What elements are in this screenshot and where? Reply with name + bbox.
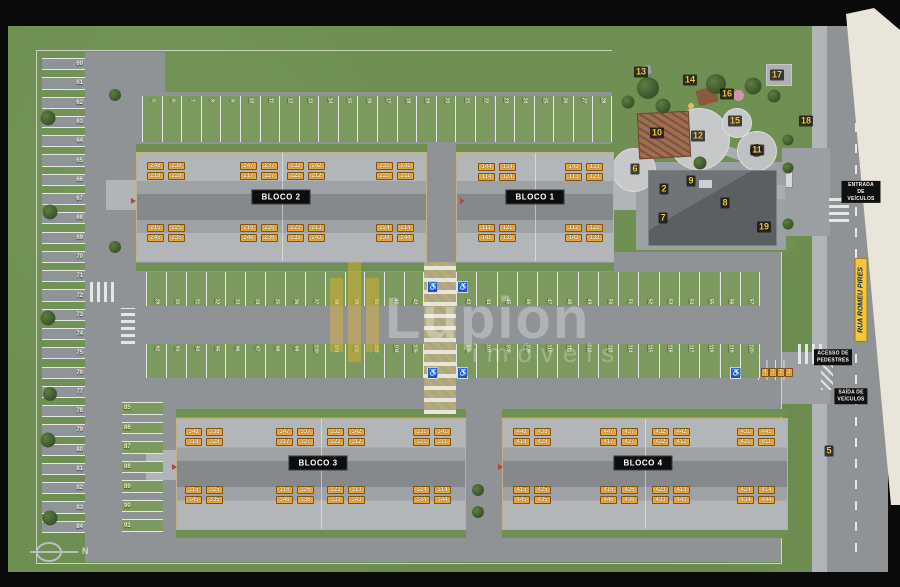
unit-label: 124 <box>499 173 516 181</box>
unit-label: 344 <box>434 496 451 504</box>
parking-stall: 78 <box>42 405 85 417</box>
parking-stall-number: 52 <box>647 299 652 305</box>
parking-stall: 60 <box>42 58 85 70</box>
parking-stall: 26 <box>553 96 573 142</box>
unit-label: 237 <box>261 162 278 170</box>
unit-label: 233 <box>287 234 304 242</box>
unit-label: 134 <box>499 163 516 171</box>
unit-label: 312 <box>348 438 365 446</box>
tree-icon <box>783 219 794 230</box>
parking-stall: 66 <box>42 174 85 186</box>
unit-label: 422 <box>652 438 669 446</box>
unit-label: 317 <box>276 438 293 446</box>
unit-label: 332 <box>327 428 344 436</box>
unit-label: 433 <box>652 496 669 504</box>
watermark-logo-bar <box>348 262 361 362</box>
unit-label: 336 <box>297 496 314 504</box>
pedestrian-access-label: ACESSO DE PEDESTRES <box>814 349 852 365</box>
parking-row-middle-top-west: 2930313233343536373839404142 <box>146 272 424 306</box>
unit-label: 348 <box>185 428 202 436</box>
unit-label: 321 <box>413 438 430 446</box>
unit-label: 437 <box>621 428 638 436</box>
direction-arrow <box>172 464 177 470</box>
parking-stall-number: 54 <box>687 299 692 305</box>
watermark-logo-bar <box>366 278 379 352</box>
parking-stall-number: 62 <box>76 100 83 106</box>
parking-stall-number: 86 <box>124 425 131 431</box>
unit-label: 215 <box>147 224 164 232</box>
parking-stall: 52 <box>638 272 658 306</box>
parking-stall: 10 <box>240 96 260 142</box>
parking-stall-number: 23 <box>502 98 507 104</box>
roof-seam <box>535 153 536 261</box>
unit-label: 417 <box>600 438 617 446</box>
parking-stall: 61 <box>42 77 85 89</box>
block-name-label: BLOCO 3 <box>288 456 347 471</box>
parking-stall: 33 <box>225 272 245 306</box>
direction-arrow <box>498 464 503 470</box>
playground-toy <box>733 90 744 101</box>
parking-stall: 72 <box>42 289 85 301</box>
parking-stall-number: 57 <box>747 299 752 305</box>
unit-label: 442 <box>673 428 690 436</box>
unit-label: 224 <box>376 224 393 232</box>
unit-label: 325 <box>206 486 223 494</box>
parking-stall-number: 74 <box>76 331 83 337</box>
green-strip <box>456 144 614 152</box>
tree-icon <box>43 387 57 401</box>
parking-stall: 14 <box>318 96 338 142</box>
unit-label: 426 <box>621 486 638 494</box>
hatched-island <box>821 362 833 390</box>
parking-stall: 8 <box>201 96 221 142</box>
accessible-parking-icon: ♿ <box>457 367 468 379</box>
parking-stall: 116 <box>659 344 679 378</box>
unit-label: 345 <box>185 496 202 504</box>
parking-stall: 36 <box>285 272 305 306</box>
parking-stall-number: 87 <box>124 444 131 450</box>
legend-marker-8: 8 <box>720 198 729 209</box>
block-name-label: BLOCO 1 <box>505 190 564 205</box>
parking-stall-number: 90 <box>124 503 131 509</box>
parking-stall: 28 <box>592 96 612 142</box>
parking-stall: 34 <box>245 272 265 306</box>
unit-label: 218 <box>147 172 164 180</box>
parking-stall-number: 29 <box>154 299 159 305</box>
legend-marker-17: 17 <box>770 70 784 81</box>
parking-stall-number: 88 <box>124 464 131 470</box>
parking-stall-number: 36 <box>293 299 298 305</box>
unit-label: 416 <box>600 486 617 494</box>
unit-label: 225 <box>168 224 185 232</box>
unit-label: 244 <box>397 234 414 242</box>
parking-stall-number: 93 <box>174 346 179 352</box>
unit-label: 432 <box>652 428 669 436</box>
parking-stall: 82 <box>42 482 85 494</box>
unit-label: 231 <box>376 162 393 170</box>
unit-label: 234 <box>376 234 393 242</box>
clubhouse-building <box>648 170 777 246</box>
visitor-stall-number: 3 <box>769 368 777 377</box>
unit-label: 247 <box>240 162 257 170</box>
unit-label: 322 <box>327 438 344 446</box>
tree-icon <box>656 99 671 114</box>
parking-stall-number: 56 <box>728 299 733 305</box>
unit-label: 323 <box>327 486 344 494</box>
unit-label: 342 <box>348 428 365 436</box>
exit-label: SAÍDA DE VEÍCULOS <box>834 388 867 404</box>
parking-stall-number: 80 <box>76 447 83 453</box>
playground-toy <box>688 103 694 109</box>
parking-stall-number: 64 <box>76 138 83 144</box>
parking-stall: 75 <box>42 347 85 359</box>
accessible-parking-icon: ♿ <box>427 367 438 379</box>
parking-stall: 25 <box>534 96 554 142</box>
green-strip <box>136 263 427 271</box>
parking-stall: 67 <box>42 193 85 205</box>
green-strip <box>456 263 614 271</box>
unit-label: 243 <box>308 234 325 242</box>
unit-label: 415 <box>513 486 530 494</box>
unit-label: 223 <box>287 224 304 232</box>
parking-stall: 64 <box>42 135 85 147</box>
parking-stall-number: 60 <box>76 61 83 67</box>
parking-stall-number: 61 <box>76 80 83 86</box>
parking-stall: 16 <box>357 96 377 142</box>
parking-stall-number: 115 <box>647 344 652 352</box>
unit-label: 242 <box>308 162 325 170</box>
unit-label: 111 <box>478 224 495 232</box>
parking-stall: 19 <box>416 96 436 142</box>
parking-stall-number: 67 <box>76 196 83 202</box>
unit-label: 315 <box>185 486 202 494</box>
unit-label: 314 <box>434 486 451 494</box>
unit-label: 221 <box>376 172 393 180</box>
parking-stall-number: 116 <box>667 344 672 352</box>
unit-label: 143 <box>565 163 582 171</box>
direction-arrow <box>460 198 465 204</box>
green-strip <box>136 144 427 152</box>
parking-stall: 90 <box>122 500 163 513</box>
parking-stall-number: 5 <box>150 99 155 102</box>
unit-label: 448 <box>513 428 530 436</box>
parking-stall: 98 <box>265 344 285 378</box>
parking-stall: 20 <box>436 96 456 142</box>
unit-label: 424 <box>737 486 754 494</box>
unit-label: 435 <box>534 496 551 504</box>
unit-label: 245 <box>147 234 164 242</box>
unit-label: 113 <box>565 173 582 181</box>
legend-marker-12: 12 <box>691 131 705 142</box>
parking-stall-number: 12 <box>287 98 292 104</box>
legend-marker-6: 6 <box>630 164 639 175</box>
parking-stall: 6 <box>162 96 182 142</box>
tree-icon <box>745 78 762 95</box>
parking-stall: 71 <box>42 270 85 282</box>
parking-stall: 31 <box>186 272 206 306</box>
unit-label: 436 <box>621 496 638 504</box>
parking-stall-number: 69 <box>76 235 83 241</box>
green-strip <box>176 530 466 538</box>
parking-stall: 21 <box>455 96 475 142</box>
parking-stall: 24 <box>514 96 534 142</box>
unit-label: 235 <box>168 234 185 242</box>
parking-stall-number: 6 <box>169 99 174 102</box>
green-strip <box>502 409 788 417</box>
unit-label: 427 <box>621 438 638 446</box>
parking-stall: 50 <box>598 272 618 306</box>
unit-label: 213 <box>308 224 325 232</box>
unit-label: 318 <box>185 438 202 446</box>
parking-stall-number: 27 <box>581 98 586 104</box>
tree-icon <box>41 311 56 326</box>
parking-stall-number: 51 <box>626 299 631 305</box>
parking-stall-number: 70 <box>76 254 83 260</box>
parking-stall-number: 33 <box>233 299 238 305</box>
parking-stall-number: 114 <box>626 344 631 352</box>
legend-marker-2: 2 <box>659 184 668 195</box>
zebra-crossing <box>121 308 135 344</box>
parking-stall: 11 <box>260 96 280 142</box>
parking-stall-number: 19 <box>424 98 429 104</box>
parking-stall: 93 <box>166 344 186 378</box>
parking-stall: 18 <box>397 96 417 142</box>
unit-label: 112 <box>565 224 582 232</box>
parking-stall-number: 73 <box>76 312 83 318</box>
unit-label: 246 <box>240 234 257 242</box>
roof-seam <box>645 419 646 529</box>
parking-stall-number: 83 <box>76 505 83 511</box>
parking-stall: 100 <box>305 344 325 378</box>
unit-label: 447 <box>600 428 617 436</box>
unit-label: 248 <box>147 162 164 170</box>
parking-stall: 17 <box>377 96 397 142</box>
parking-stall-number: 26 <box>561 98 566 104</box>
parking-stall-number: 66 <box>76 177 83 183</box>
unit-label: 423 <box>652 486 669 494</box>
unit-label: 144 <box>478 163 495 171</box>
unit-label: 443 <box>673 496 690 504</box>
parking-stall: 91 <box>122 519 163 532</box>
unit-label: 446 <box>600 496 617 504</box>
unit-label: 418 <box>513 438 530 446</box>
parking-stall-number: 77 <box>76 389 83 395</box>
parking-stall-number: 21 <box>463 98 468 104</box>
parking-stall-number: 84 <box>76 524 83 530</box>
parking-row-top-row: 5678910111213141516171819202122232425262… <box>142 96 612 142</box>
street-name-label: RUA ROMEU PIRES <box>855 258 868 342</box>
tree-icon <box>43 205 58 220</box>
entrance-label: ENTRADA DE VEÍCULOS <box>842 181 881 203</box>
parking-stall-number: 37 <box>313 299 318 305</box>
unit-label: 123 <box>586 173 603 181</box>
parking-stall-number: 24 <box>522 98 527 104</box>
parking-stall-number: 7 <box>189 99 194 102</box>
parking-stall-number: 117 <box>687 344 692 352</box>
parking-stall-number: 98 <box>273 346 278 352</box>
parking-stall: 92 <box>146 344 166 378</box>
parking-stall-number: 100 <box>313 344 318 352</box>
legend-marker-5: 5 <box>824 446 833 457</box>
roof-seam <box>321 419 322 529</box>
tree-icon <box>41 111 56 126</box>
parking-stall: 117 <box>679 344 699 378</box>
parking-stall-number: 82 <box>76 485 83 491</box>
parking-stall-number: 92 <box>154 346 159 352</box>
parking-row-middle-bottom-west: 9293949596979899100101102103104105 <box>146 344 424 378</box>
unit-label: 335 <box>206 496 223 504</box>
unit-label: 132 <box>586 234 603 242</box>
parking-stall: 81 <box>42 463 85 475</box>
parking-stall-number: 91 <box>124 523 131 529</box>
unit-label: 214 <box>397 224 414 232</box>
parking-stall: 13 <box>299 96 319 142</box>
legend-marker-16: 16 <box>720 89 734 100</box>
unit-label: 222 <box>287 172 304 180</box>
parking-stall: 22 <box>475 96 495 142</box>
parking-stall-number: 15 <box>346 98 351 104</box>
zebra-crossing <box>90 282 116 302</box>
parking-stall-number: 96 <box>233 346 238 352</box>
parking-stall-number: 25 <box>541 98 546 104</box>
tree-icon <box>694 157 707 170</box>
unit-label: 316 <box>276 486 293 494</box>
roof-seam <box>282 153 283 261</box>
parking-stall: 87 <box>122 441 163 454</box>
accessible-parking-icon: ♿ <box>730 367 741 379</box>
parking-stall-number: 63 <box>76 119 83 125</box>
parking-stall: 56 <box>720 272 740 306</box>
parking-stall-number: 9 <box>228 99 233 102</box>
direction-arrow <box>131 198 136 204</box>
watermark-subtext: imóveis <box>472 338 623 369</box>
parking-stall-number: 14 <box>326 98 331 104</box>
visitor-stall-number: 1 <box>785 368 793 377</box>
parking-stall-number: 76 <box>76 370 83 376</box>
parking-stall-number: 17 <box>385 98 390 104</box>
parking-stall: 69 <box>42 232 85 244</box>
parking-stall-number: 20 <box>444 98 449 104</box>
parking-stall: 88 <box>122 461 163 474</box>
unit-label: 311 <box>434 438 451 446</box>
visitor-stall-number: 4 <box>761 368 769 377</box>
unit-label: 313 <box>348 486 365 494</box>
unit-label: 341 <box>434 428 451 436</box>
parking-stall-number: 78 <box>76 408 83 414</box>
unit-label: 328 <box>206 438 223 446</box>
parking-stall: 35 <box>265 272 285 306</box>
unit-label: 142 <box>565 234 582 242</box>
unit-label: 141 <box>478 234 495 242</box>
legend-marker-9: 9 <box>686 176 695 187</box>
unit-label: 411 <box>758 438 775 446</box>
parking-stall: 32 <box>206 272 226 306</box>
unit-label: 333 <box>327 496 344 504</box>
parking-stall-number: 53 <box>667 299 672 305</box>
parking-stall-number: 31 <box>194 299 199 305</box>
parking-stall: 74 <box>42 328 85 340</box>
parking-stall-number: 18 <box>404 98 409 104</box>
legend-marker-19: 19 <box>757 222 771 233</box>
tree-icon <box>622 96 635 109</box>
unit-label: 438 <box>534 428 551 436</box>
parking-stall: 27 <box>573 96 593 142</box>
tree-icon <box>43 511 58 526</box>
driveway-stub <box>106 180 138 210</box>
legend-marker-14: 14 <box>683 75 697 86</box>
parking-stall-number: 55 <box>707 299 712 305</box>
tree-icon <box>472 506 484 518</box>
parking-stall-number: 71 <box>76 273 83 279</box>
compass-north-label: N <box>82 546 89 556</box>
unit-label: 232 <box>287 162 304 170</box>
parking-stall: 15 <box>338 96 358 142</box>
parking-stall-number: 95 <box>214 346 219 352</box>
parking-row-inner-column: 85868788899091 <box>122 402 163 539</box>
parking-stall-number: 68 <box>76 215 83 221</box>
unit-label: 238 <box>168 162 185 170</box>
parking-stall-number: 28 <box>600 98 605 104</box>
unit-label: 133 <box>586 163 603 171</box>
unit-label: 327 <box>297 438 314 446</box>
parking-stall: 97 <box>245 344 265 378</box>
unit-label: 445 <box>513 496 530 504</box>
parking-stall: 85 <box>122 402 163 415</box>
parking-stall: 9 <box>220 96 240 142</box>
unit-label: 236 <box>261 234 278 242</box>
unit-label: 227 <box>261 172 278 180</box>
unit-label: 425 <box>534 486 551 494</box>
unit-label: 216 <box>240 224 257 232</box>
parking-stall: 65 <box>42 154 85 166</box>
parking-stall-number: 11 <box>267 98 272 103</box>
parking-stall-number: 50 <box>606 299 611 305</box>
parking-stall: 51 <box>618 272 638 306</box>
parking-stall: 115 <box>638 344 658 378</box>
tree-icon <box>783 135 794 146</box>
clubhouse-skylight <box>699 180 712 188</box>
parking-stall: 94 <box>186 344 206 378</box>
parking-stall-number: 8 <box>209 99 214 102</box>
tree-icon <box>783 163 794 174</box>
tree-icon <box>768 90 781 103</box>
legend-marker-11: 11 <box>750 145 764 156</box>
unit-label: 421 <box>737 438 754 446</box>
parking-stall-number: 22 <box>483 98 488 104</box>
parking-stall: 7 <box>181 96 201 142</box>
parking-stall-number: 32 <box>214 299 219 305</box>
parking-stall: 57 <box>740 272 760 306</box>
parking-stall: 30 <box>166 272 186 306</box>
parking-stall-number: 81 <box>76 466 83 472</box>
unit-label: 121 <box>499 224 516 232</box>
unit-label: 212 <box>308 172 325 180</box>
parking-stall: 29 <box>146 272 166 306</box>
tree-icon <box>109 89 121 101</box>
tree-icon <box>109 241 121 253</box>
parking-stall-number: 16 <box>365 98 370 104</box>
tree-icon <box>637 77 659 99</box>
parking-stall: 37 <box>305 272 325 306</box>
parking-stall: 99 <box>285 344 305 378</box>
unit-label: 343 <box>348 496 365 504</box>
parking-stall-number: 30 <box>174 299 179 305</box>
visitor-stall-number: 2 <box>777 368 785 377</box>
parking-stall-number: 118 <box>707 344 712 352</box>
unit-label: 412 <box>673 438 690 446</box>
parking-stall: 5 <box>142 96 162 142</box>
unit-label: 217 <box>240 172 257 180</box>
